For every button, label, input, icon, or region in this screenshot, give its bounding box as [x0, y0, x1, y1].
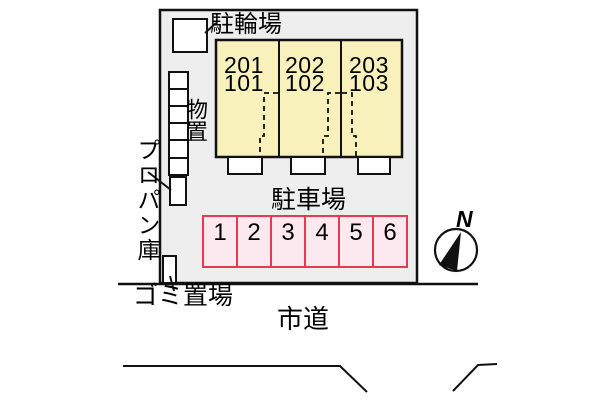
propane-label: プロパン庫	[135, 138, 158, 263]
parking-lot-label: 駐車場	[271, 188, 346, 213]
parking-space-1: 1	[204, 217, 238, 266]
city-road-label: 市道	[277, 306, 329, 332]
bicycle-parking-box	[173, 19, 207, 52]
garbage-box	[163, 256, 176, 283]
unit-3-lower-number: 103	[349, 75, 389, 93]
parking-space-5: 5	[340, 217, 374, 266]
porch-unit1	[228, 157, 262, 174]
parking-space-6: 6	[374, 217, 406, 266]
north-compass-icon	[435, 229, 477, 271]
parking-space-4: 4	[306, 217, 340, 266]
parking-space-2: 2	[238, 217, 272, 266]
storage-label: 物置	[184, 98, 206, 142]
propane-box	[170, 177, 186, 205]
porch-unit3	[358, 157, 390, 174]
parking-space-3: 3	[272, 217, 306, 266]
unit-2-lower-number: 102	[285, 75, 325, 93]
parking-grid: 1 2 3 4 5 6	[202, 215, 408, 268]
porch-unit2	[291, 157, 325, 174]
unit-label-1: 201 101	[224, 57, 264, 92]
road-lower-edge-right	[453, 364, 497, 391]
unit-1-lower-number: 101	[224, 75, 264, 93]
unit-label-3: 203 103	[349, 57, 389, 92]
north-label: N	[456, 208, 473, 231]
unit-label-2: 202 102	[285, 57, 325, 92]
road-lower-edge-left	[123, 366, 367, 392]
site-plan: 駐輪場 物置 プロパン庫 ゴミ置場 駐車場 市道 N 201 101 202 1…	[0, 0, 600, 400]
bicycle-parking-label: 駐輪場	[210, 13, 282, 37]
garbage-label: ゴミ置場	[133, 284, 233, 309]
